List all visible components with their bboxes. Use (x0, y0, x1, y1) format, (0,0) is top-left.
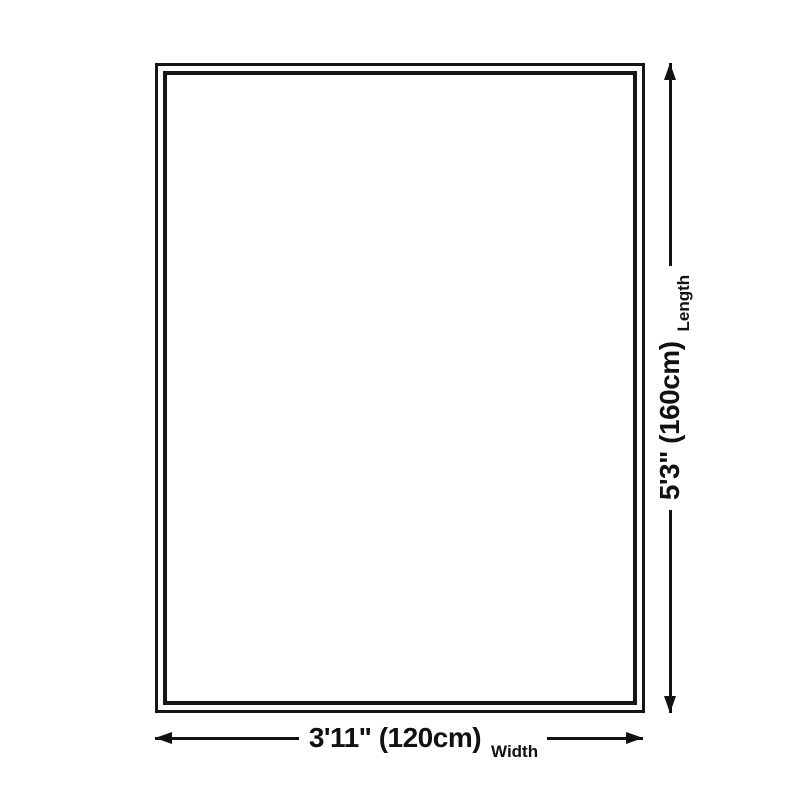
product-outline-rectangle (155, 63, 645, 713)
product-outline-inner-border (163, 71, 637, 705)
arrowhead-right-icon (626, 732, 643, 744)
width-dimension-value: 3'11" (120cm) (309, 724, 481, 752)
size-diagram: 5'3" (160cm) Length 3'11" (120cm) Width (0, 0, 800, 800)
arrowhead-up-icon (664, 63, 676, 80)
length-dimension-annotation: 5'3" (160cm) Length (648, 63, 692, 713)
length-dimension-line-upper (669, 63, 672, 266)
width-dimension-label: Width (491, 743, 538, 760)
arrowhead-left-icon (155, 732, 172, 744)
length-dimension-line-lower (669, 510, 672, 713)
length-dimension-label: Length (675, 275, 692, 332)
width-dimension-line-right (547, 737, 643, 740)
width-dimension-annotation: 3'11" (120cm) Width (155, 716, 643, 760)
arrowhead-down-icon (664, 696, 676, 713)
width-dimension-line-left (155, 737, 299, 740)
length-dimension-value: 5'3" (160cm) (656, 341, 684, 500)
